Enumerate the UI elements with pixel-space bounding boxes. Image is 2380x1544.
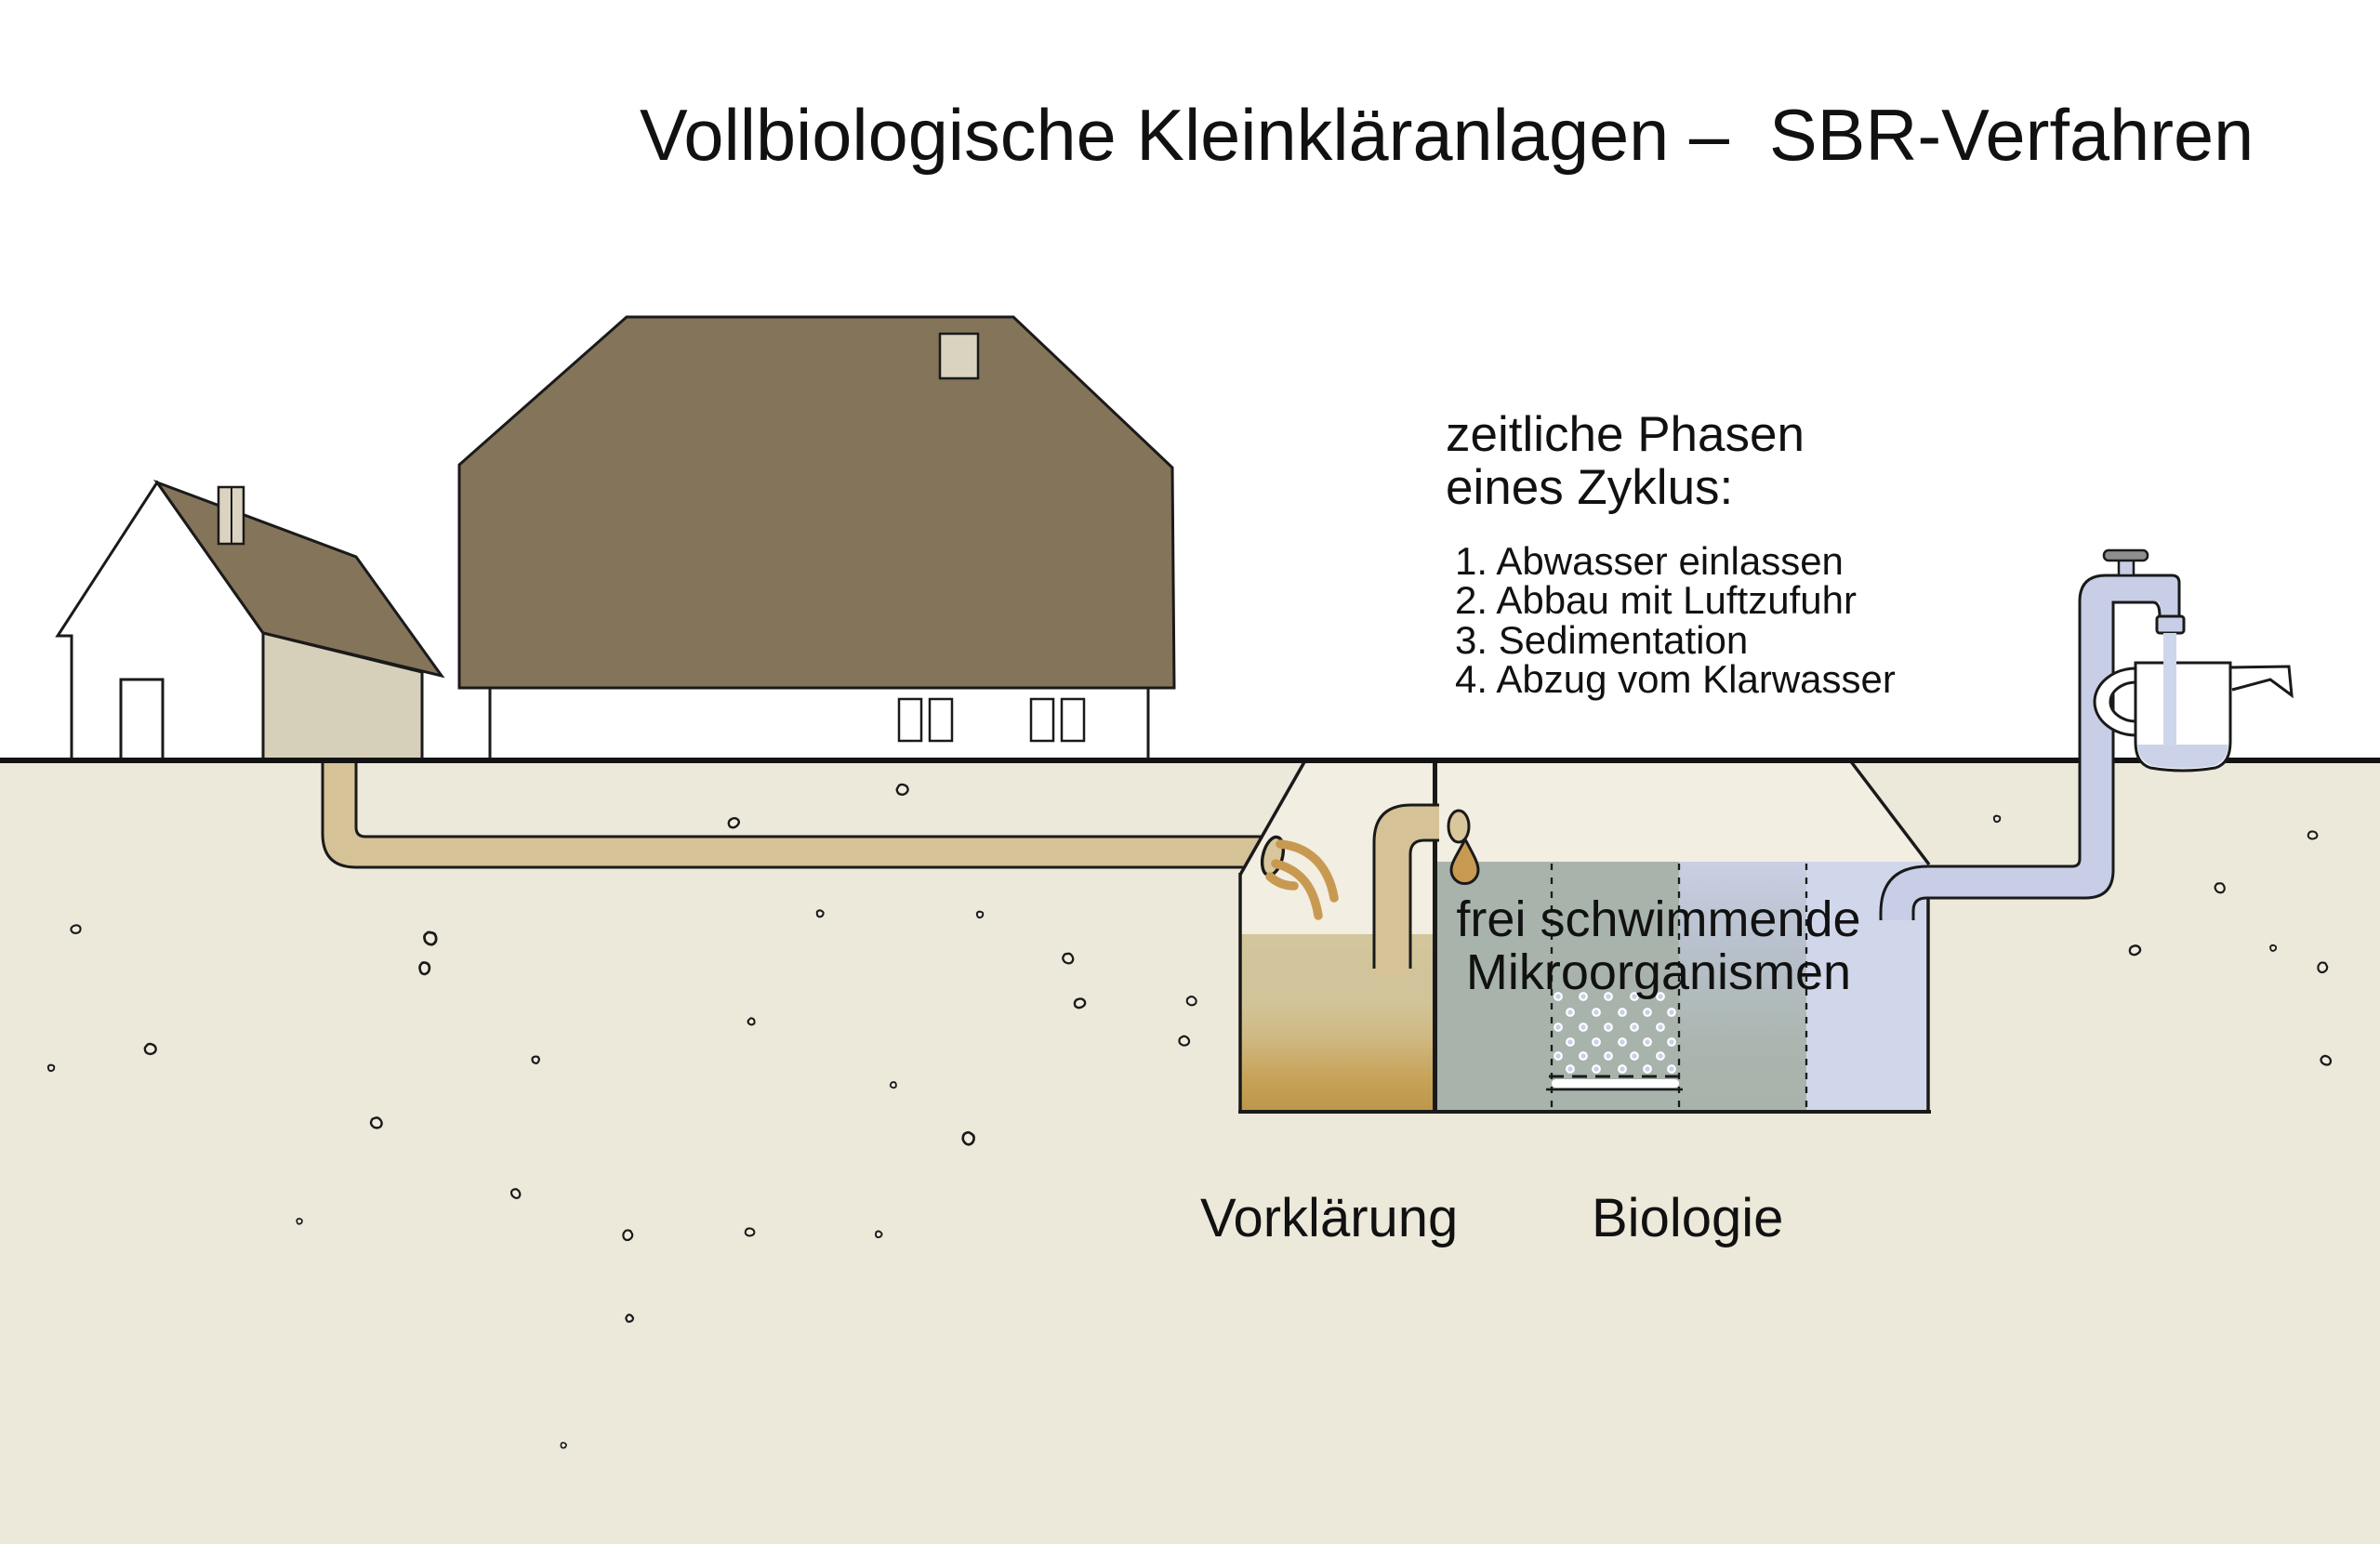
svg-text:1. Abwasser einlassen: 1. Abwasser einlassen [1455, 539, 1844, 583]
svg-text:zeitliche Phasen: zeitliche Phasen [1446, 407, 1805, 462]
svg-text:4. Abzug vom Klarwasser: 4. Abzug vom Klarwasser [1455, 657, 1896, 701]
svg-text:3. Sedimentation: 3. Sedimentation [1455, 618, 1748, 662]
svg-text:2. Abbau mit Luftzufuhr: 2. Abbau mit Luftzufuhr [1455, 578, 1857, 622]
svg-text:Vorklärung: Vorklärung [1200, 1188, 1458, 1248]
svg-text:eines Zyklus:: eines Zyklus: [1446, 460, 1733, 515]
svg-text:frei schwimmende: frei schwimmende [1456, 891, 1860, 947]
svg-text:Vollbiologische Kleinkläranlag: Vollbiologische Kleinkläranlagen – SBR-V… [640, 96, 2254, 176]
svg-text:Mikroorganismen: Mikroorganismen [1466, 944, 1851, 1000]
svg-text:Biologie: Biologie [1592, 1188, 1783, 1248]
